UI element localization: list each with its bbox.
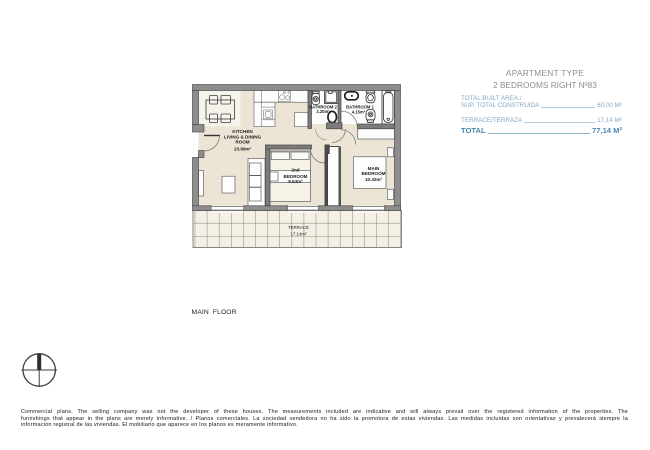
svg-text:10.32m²: 10.32m² — [365, 177, 383, 182]
svg-text:4.15m²: 4.15m² — [352, 109, 366, 114]
svg-text:9.54m²: 9.54m² — [288, 179, 303, 184]
svg-text:23.89m²: 23.89m² — [234, 146, 252, 151]
svg-text:ROOM: ROOM — [235, 140, 249, 145]
svg-text:2nd: 2nd — [291, 168, 299, 173]
svg-text:2.20m²: 2.20m² — [316, 109, 330, 114]
svg-text:17.14m²: 17.14m² — [290, 231, 307, 236]
svg-text:BEDROOM: BEDROOM — [362, 171, 386, 176]
svg-text:TERRACE: TERRACE — [288, 225, 309, 230]
svg-text:LIVING & DINING: LIVING & DINING — [224, 134, 262, 139]
svg-text:KITCHEN: KITCHEN — [232, 129, 253, 134]
